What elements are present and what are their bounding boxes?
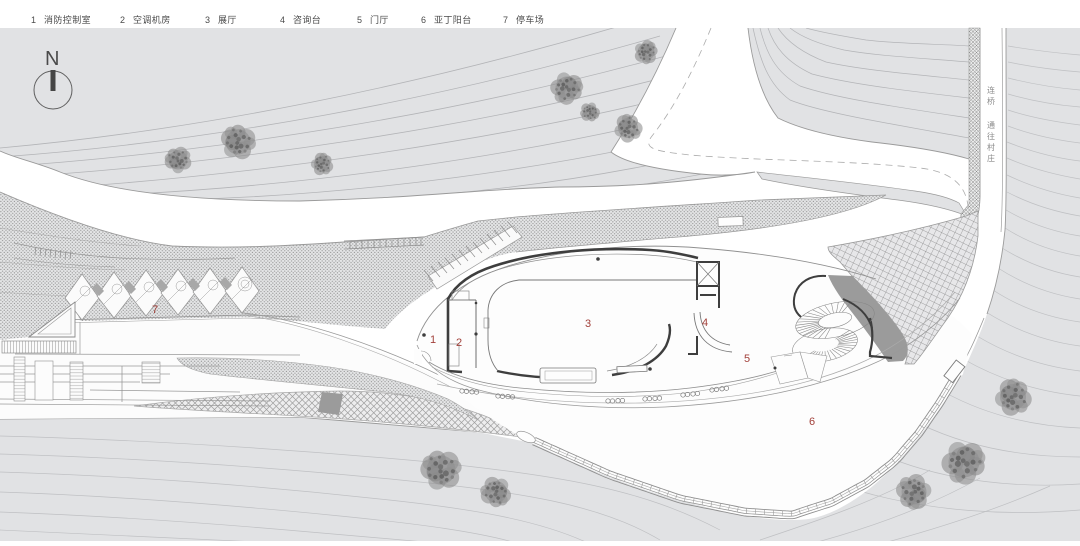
svg-text:停车场: 停车场 [516, 14, 544, 25]
svg-text:门厅: 门厅 [370, 14, 389, 25]
svg-text:4: 4 [702, 317, 708, 329]
svg-text:5: 5 [357, 15, 362, 25]
svg-text:亚丁阳台: 亚丁阳台 [434, 14, 472, 25]
svg-text:7: 7 [503, 15, 508, 25]
svg-text:村: 村 [987, 142, 995, 152]
svg-text:展厅: 展厅 [218, 15, 237, 25]
svg-text:6: 6 [421, 15, 426, 25]
svg-text:6: 6 [809, 416, 815, 428]
svg-text:3: 3 [585, 318, 591, 330]
svg-text:桥: 桥 [987, 96, 995, 106]
svg-text:5: 5 [744, 353, 750, 365]
svg-text:1: 1 [31, 15, 36, 25]
svg-text:庄: 庄 [987, 153, 995, 163]
svg-text:1: 1 [430, 334, 436, 346]
svg-text:2: 2 [120, 15, 125, 25]
svg-text:N: N [45, 48, 59, 70]
svg-text:2: 2 [456, 337, 462, 349]
svg-text:往: 往 [987, 131, 995, 141]
svg-text:通: 通 [987, 120, 995, 130]
svg-text:连: 连 [987, 85, 995, 95]
svg-text:3: 3 [205, 15, 210, 25]
svg-text:空调机房: 空调机房 [133, 14, 171, 25]
svg-text:4: 4 [280, 15, 285, 25]
svg-text:咨询台: 咨询台 [293, 14, 321, 25]
svg-text:7: 7 [152, 304, 158, 316]
svg-text:消防控制室: 消防控制室 [44, 14, 91, 25]
